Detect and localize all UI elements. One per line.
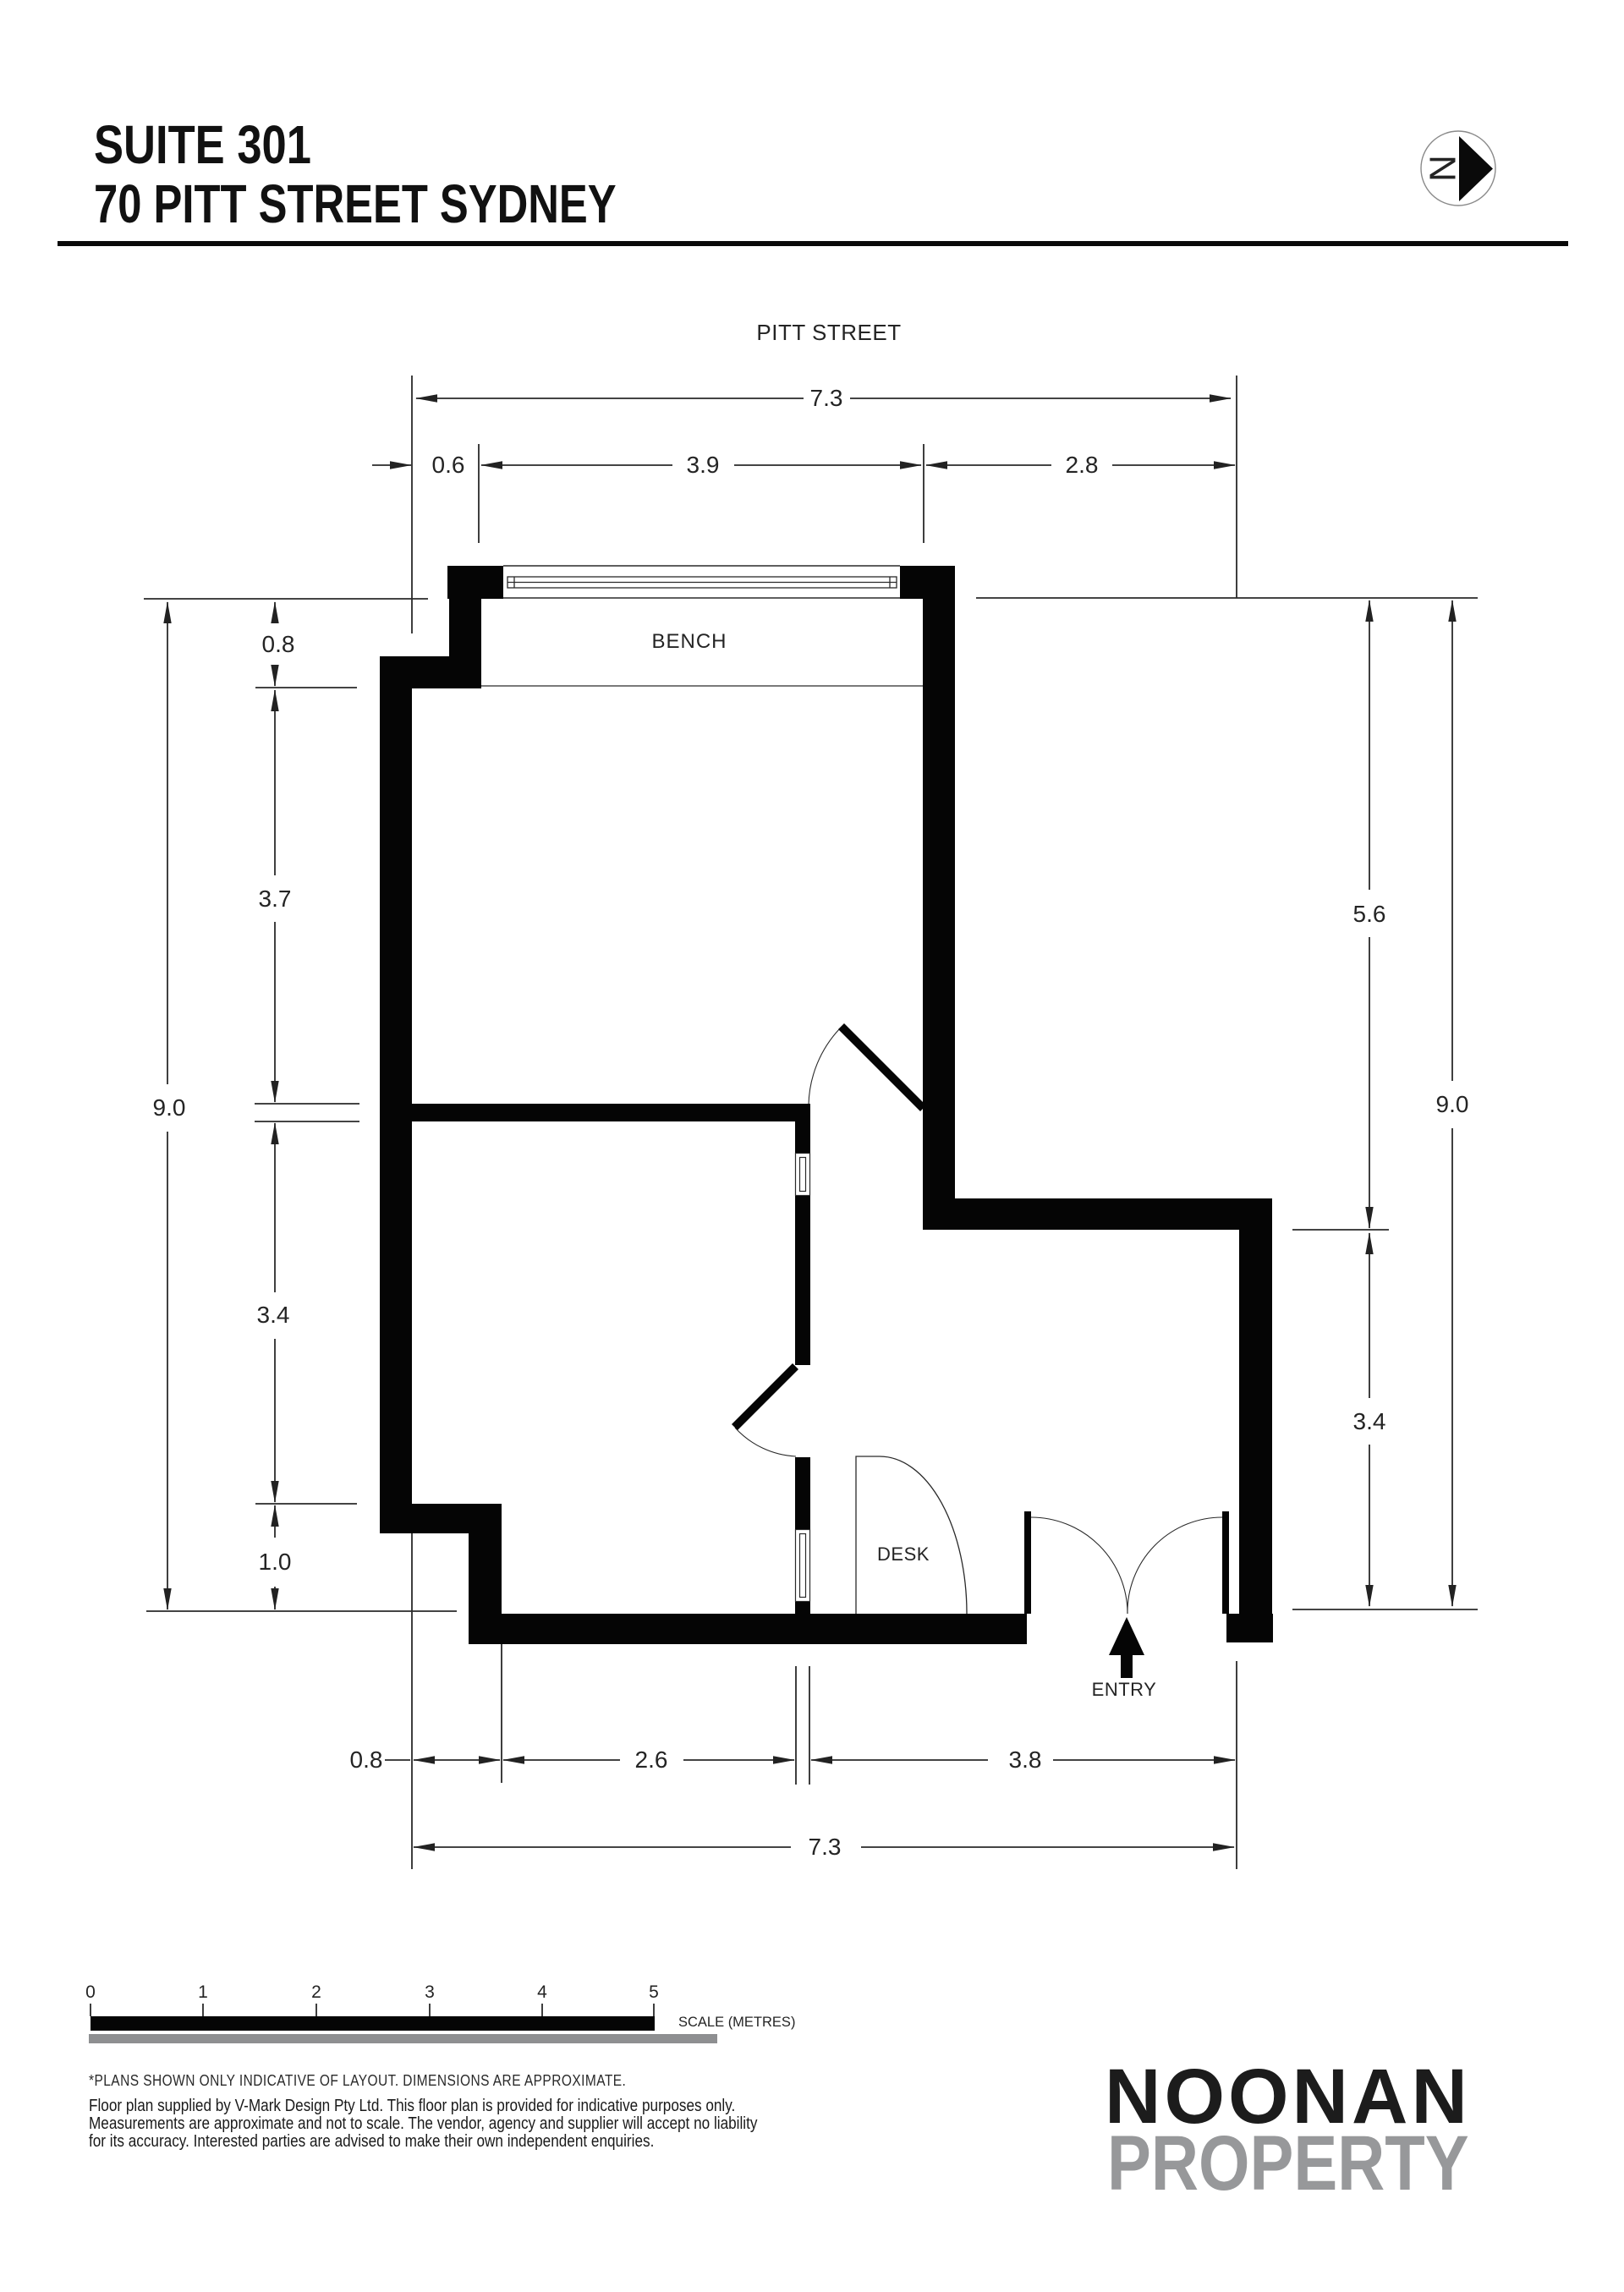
svg-text:0: 0 — [85, 1982, 96, 2002]
svg-text:1.0: 1.0 — [259, 1549, 292, 1575]
svg-text:3.9: 3.9 — [687, 452, 720, 478]
svg-text:2.6: 2.6 — [635, 1746, 668, 1773]
svg-text:2.8: 2.8 — [1066, 452, 1099, 478]
svg-text:3.7: 3.7 — [259, 886, 292, 912]
svg-text:BENCH: BENCH — [651, 630, 727, 653]
svg-text:0.6: 0.6 — [432, 452, 465, 478]
svg-text:9.0: 9.0 — [1436, 1091, 1469, 1117]
svg-text:1: 1 — [198, 1982, 208, 2002]
svg-text:3.4: 3.4 — [1353, 1408, 1386, 1434]
svg-text:5.6: 5.6 — [1353, 901, 1386, 927]
svg-text:3.4: 3.4 — [257, 1302, 290, 1328]
svg-text:SCALE (METRES): SCALE (METRES) — [678, 2015, 795, 2030]
svg-text:0.8: 0.8 — [350, 1746, 383, 1773]
svg-text:3.8: 3.8 — [1009, 1746, 1042, 1773]
svg-text:5: 5 — [649, 1982, 659, 2002]
svg-text:3: 3 — [425, 1982, 435, 2002]
svg-text:4: 4 — [537, 1982, 547, 2002]
svg-text:2: 2 — [311, 1982, 321, 2002]
svg-text:7.3: 7.3 — [809, 1834, 842, 1860]
svg-text:N: N — [1422, 155, 1463, 182]
svg-text:DESK: DESK — [877, 1544, 930, 1565]
svg-text:7.3: 7.3 — [810, 385, 843, 411]
svg-text:9.0: 9.0 — [153, 1094, 186, 1121]
svg-text:PITT STREET: PITT STREET — [756, 320, 901, 345]
svg-text:ENTRY: ENTRY — [1092, 1679, 1157, 1700]
svg-text:0.8: 0.8 — [262, 631, 295, 657]
